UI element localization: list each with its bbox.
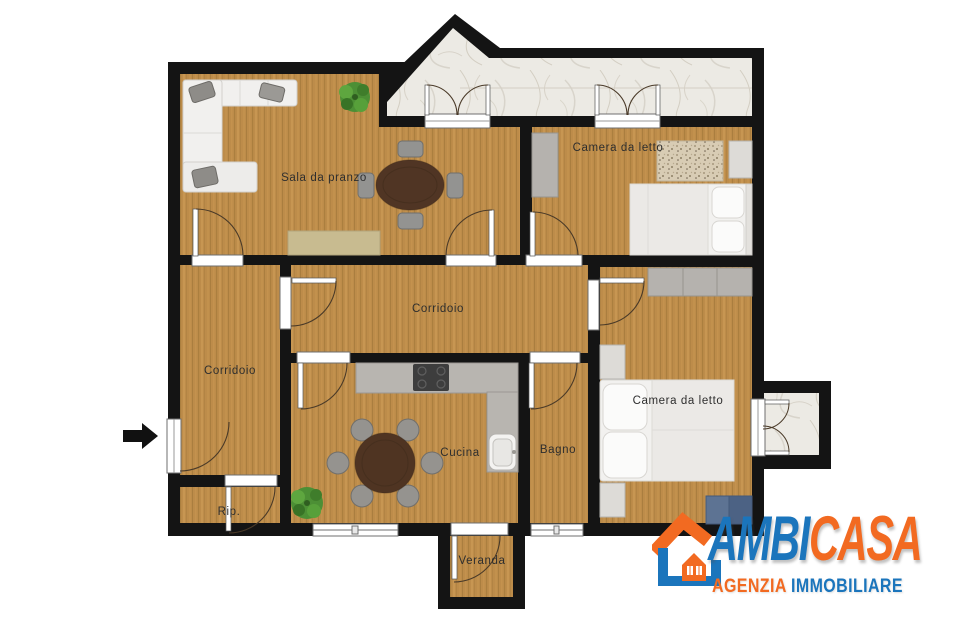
logo-brand: AMBICASA: [708, 506, 922, 572]
logo-tagline-agenzia: AGENZIA: [712, 576, 786, 597]
room-label-corridor-entry: Corridoio: [204, 365, 256, 377]
rug-dining: [288, 231, 380, 255]
nightstand-top: [600, 345, 625, 379]
dresser-bedroom-top: [729, 141, 752, 178]
room-label-bathroom: Bagno: [540, 444, 576, 456]
cooktop: [413, 364, 449, 391]
floor-bathroom: [530, 363, 588, 523]
plant-kitchen: [291, 487, 323, 519]
sink: [489, 434, 516, 470]
logo-brand-ambi: AMBI: [708, 504, 809, 574]
logo: AMBICASA AGENZIA IMMOBILIARE: [652, 502, 960, 618]
balcony-top-floor: [387, 28, 752, 116]
room-label-corridor-main: Corridoio: [412, 303, 464, 315]
entrance-arrow-icon: [123, 423, 158, 449]
logo-tagline-immobiliare: IMMOBILIARE: [791, 576, 903, 597]
wardrobe-bedroom-bottom: [648, 268, 752, 296]
logo-brand-casa: CASA: [809, 504, 922, 574]
floor-plan-page: Sala da pranzo Camera da letto Corridoio…: [0, 0, 960, 618]
room-label-veranda: Veranda: [458, 555, 505, 567]
room-label-storage: Rip.: [218, 506, 241, 518]
room-label-kitchen: Cucina: [440, 447, 479, 459]
room-label-bedroom-bottom: Camera da letto: [633, 395, 724, 407]
logo-tagline: AGENZIA IMMOBILIARE: [712, 576, 903, 598]
bed-bedroom-top: [630, 184, 752, 255]
bathroom-window: [531, 524, 583, 536]
rug-bedroom-top: [657, 141, 723, 181]
kitchen-window: [313, 524, 398, 536]
nightstand-bottom: [600, 483, 625, 517]
wardrobe-bedroom-top: [532, 133, 558, 197]
room-label-dining: Sala da pranzo: [281, 172, 367, 184]
room-label-bedroom-top: Camera da letto: [573, 142, 664, 154]
plant-dining: [339, 82, 370, 112]
